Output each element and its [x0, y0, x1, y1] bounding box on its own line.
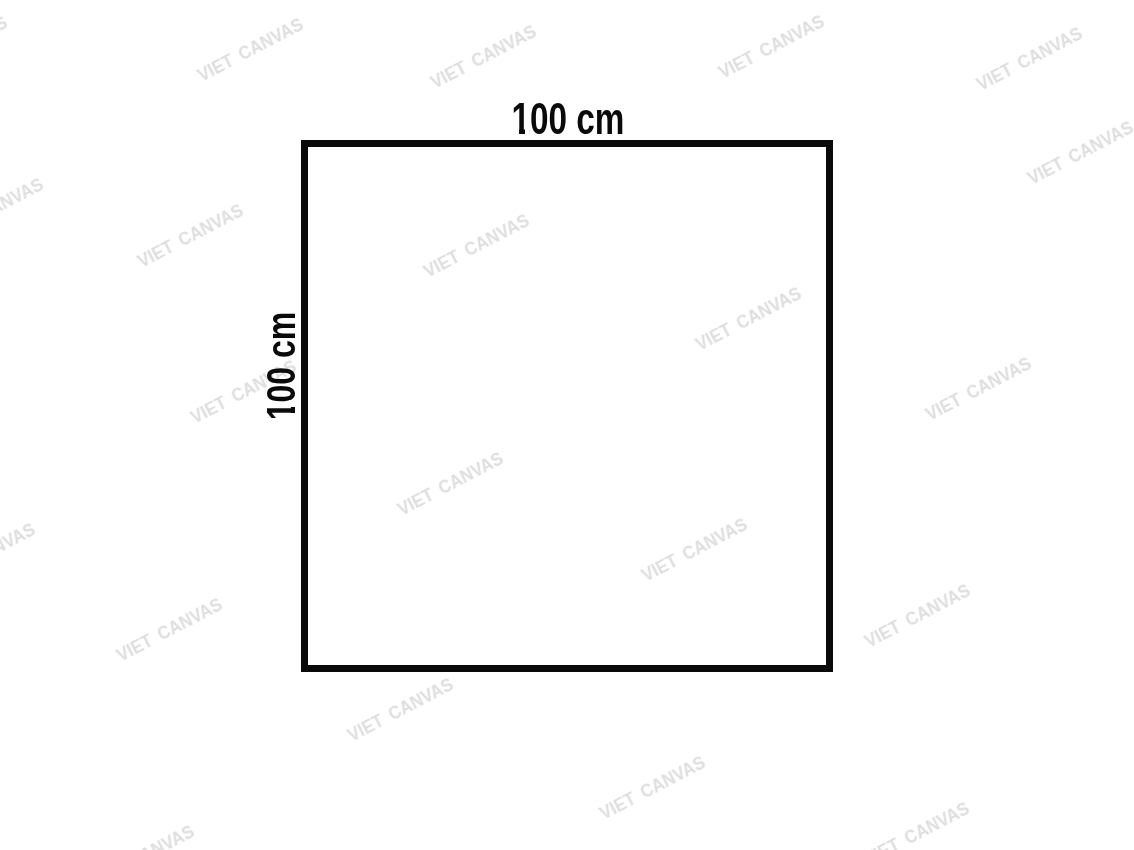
svg-text:VIET CANVAS: VIET CANVAS: [194, 14, 306, 85]
svg-text:VIET CANVAS: VIET CANVAS: [427, 21, 539, 92]
svg-text:VIET CANVAS: VIET CANVAS: [861, 580, 973, 651]
svg-text:VIET CANVAS: VIET CANVAS: [860, 798, 972, 850]
svg-text:VIET CANVAS: VIET CANVAS: [134, 200, 246, 271]
svg-text:VIET CANVAS: VIET CANVAS: [0, 519, 39, 590]
svg-text:VIET CANVAS: VIET CANVAS: [973, 23, 1085, 94]
svg-text:VIET CANVAS: VIET CANVAS: [922, 353, 1034, 424]
svg-text:VIET CANVAS: VIET CANVAS: [0, 174, 47, 245]
svg-text:VIET CANVAS: VIET CANVAS: [1024, 117, 1134, 188]
svg-text:VIET CANVAS: VIET CANVAS: [715, 11, 827, 82]
svg-text:VIET CANVAS: VIET CANVAS: [85, 821, 197, 850]
svg-text:VIET CANVAS: VIET CANVAS: [596, 752, 708, 823]
svg-text:VIET CANVAS: VIET CANVAS: [344, 674, 456, 745]
svg-text:VIET CANVAS: VIET CANVAS: [113, 594, 225, 665]
svg-text:VIET CANVAS: VIET CANVAS: [0, 12, 11, 83]
